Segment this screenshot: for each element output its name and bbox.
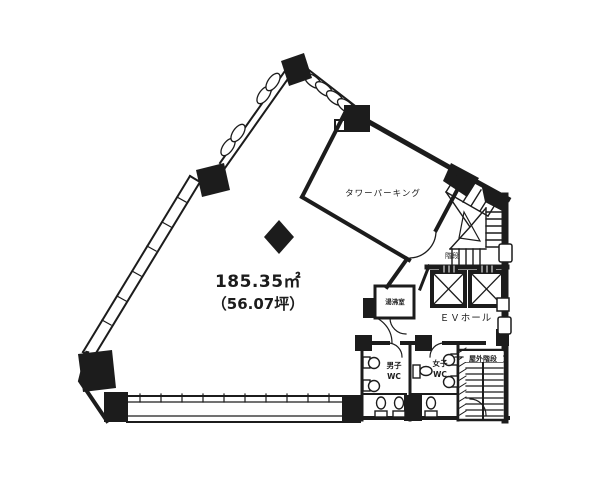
right-wall-opening-2 bbox=[498, 317, 511, 334]
ev-hall-label: ＥＶホール bbox=[440, 313, 493, 324]
mens-wc-door-arc bbox=[388, 343, 402, 357]
toilet-icon bbox=[395, 397, 404, 409]
tower-parking-room: タワーパーキング bbox=[302, 111, 421, 260]
outdoor-stairs-label: 屋外階段 bbox=[469, 354, 497, 363]
area-sqm-label: 185.35㎡ bbox=[215, 271, 301, 292]
column-freestanding-diamond bbox=[264, 220, 294, 254]
column-wc-divider bbox=[404, 395, 422, 421]
tower-parking-label: タワーパーキング bbox=[345, 188, 421, 199]
kitchenette-label: 湯沸室 bbox=[385, 297, 405, 306]
main-area: 185.35㎡ （56.07坪） bbox=[212, 271, 304, 313]
ev-hall-door-arc bbox=[410, 231, 436, 258]
sink-icon bbox=[369, 358, 380, 369]
column-bottom-left-2 bbox=[104, 392, 128, 422]
kitchenette-door-arc bbox=[390, 318, 406, 334]
womens-wc-label-line1: 女子 bbox=[433, 358, 448, 368]
sink-icon bbox=[369, 381, 380, 392]
column-parking-top bbox=[344, 105, 370, 132]
window-mullion-ticks bbox=[102, 197, 186, 325]
outdoor-stairs: 屋外階段 bbox=[455, 348, 505, 420]
column-bottom-left-1 bbox=[78, 350, 116, 392]
column-left-mid bbox=[196, 163, 230, 197]
right-wall-niche bbox=[497, 298, 509, 311]
right-wall-opening-1 bbox=[499, 244, 512, 262]
toilet-icon bbox=[377, 397, 386, 409]
bottom-window-band bbox=[127, 394, 360, 422]
toilet-icon bbox=[420, 367, 432, 376]
floor-plan-page: タワーパーキング 階段 bbox=[0, 0, 616, 493]
mens-wc-label-line2: WC bbox=[387, 372, 401, 381]
left-window-band bbox=[83, 176, 200, 358]
stairs-label: 階段 bbox=[445, 251, 459, 260]
elevators bbox=[432, 265, 503, 306]
toilet-icon bbox=[427, 397, 436, 409]
window-vent-loop-icons bbox=[218, 71, 357, 158]
column-band-right bbox=[342, 396, 359, 422]
mens-wc-label-line1: 男子 bbox=[387, 361, 402, 370]
womens-wc-label-line2: WC bbox=[433, 370, 447, 379]
area-tsubo-label: （56.07坪） bbox=[212, 295, 304, 313]
floor-plan: タワーパーキング 階段 bbox=[0, 0, 616, 493]
womens-wc-door-arc bbox=[430, 343, 444, 357]
